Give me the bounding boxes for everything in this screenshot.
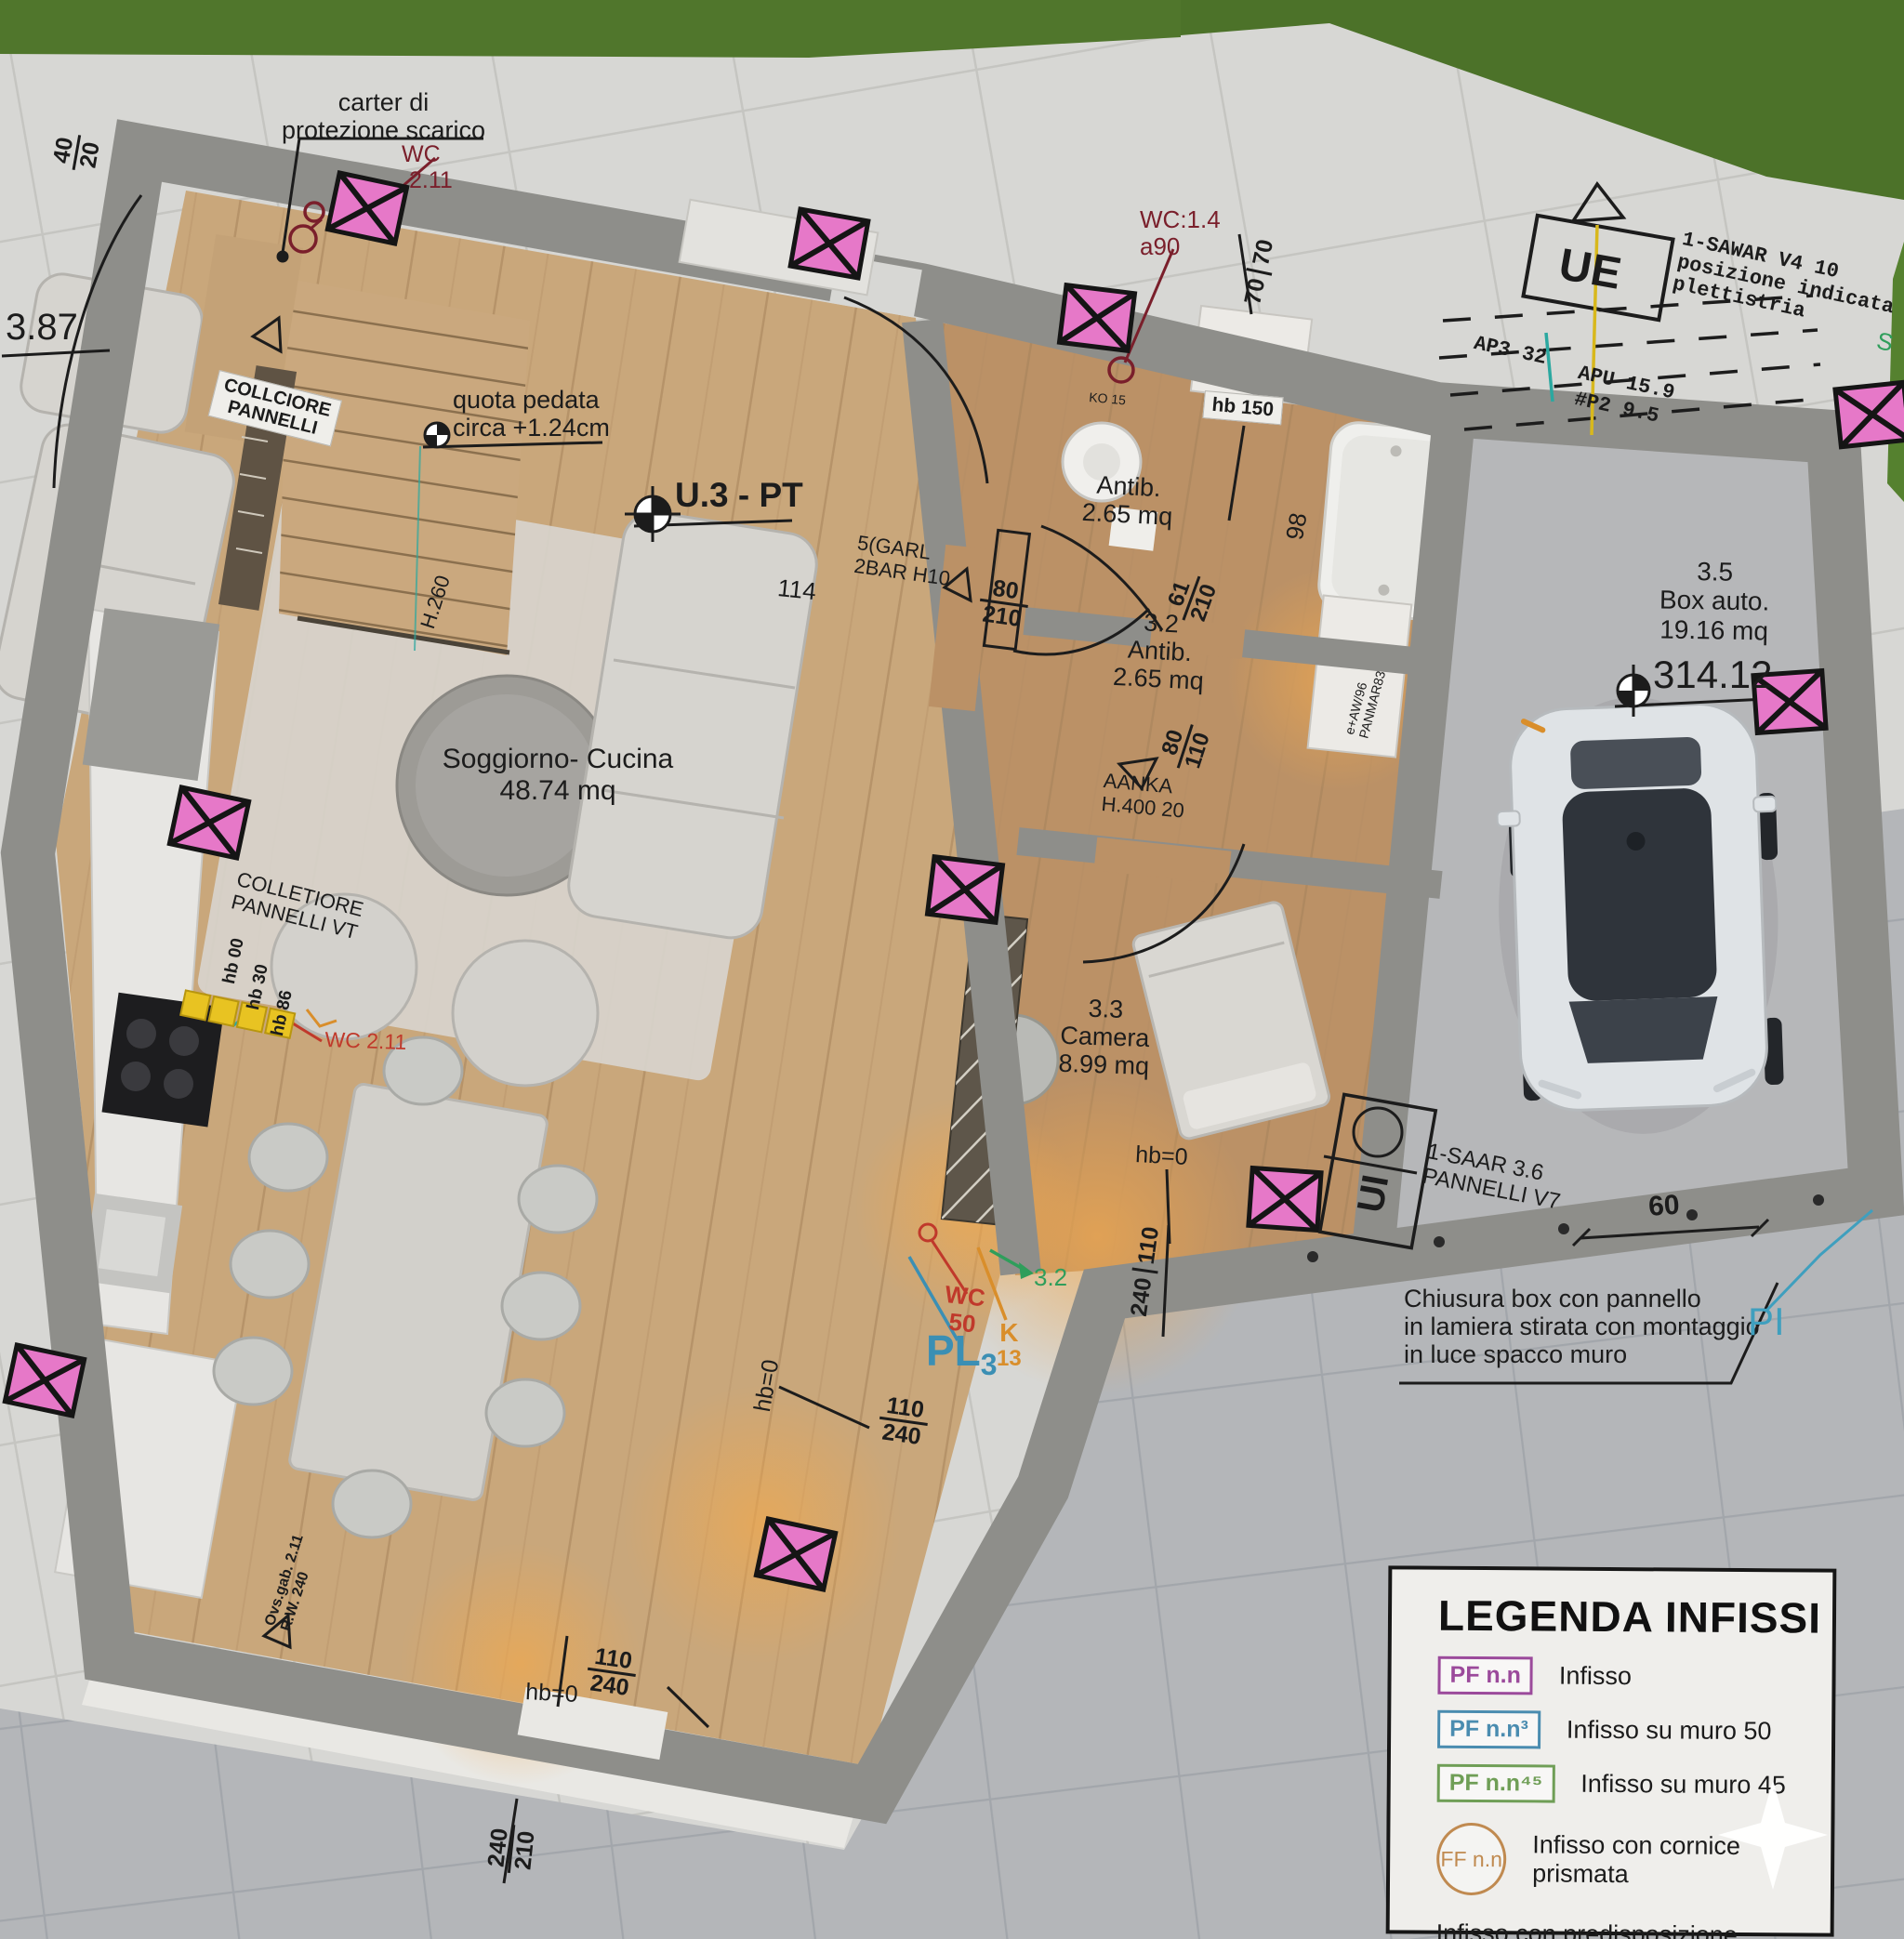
legend-symbol-pf: PF n.n	[1437, 1656, 1533, 1695]
legend-row-muro50: PF n.n³ Infisso su muro 50	[1437, 1710, 1831, 1751]
carter-note: carter diprotezione scarico	[279, 88, 488, 144]
quota-note: quota pedatacirca +1.24cm	[453, 386, 610, 442]
ue-label: UE	[1555, 240, 1625, 300]
pi-label: PI	[1748, 1299, 1785, 1343]
living-label: Soggiorno- Cucina48.74 mq	[423, 744, 693, 806]
dim-240-210: 240210	[483, 1823, 540, 1876]
legend-label: Infisso su muro 45	[1580, 1770, 1786, 1800]
k13-label: K13	[997, 1318, 1022, 1372]
legend-symbol-pf-50: PF n.n³	[1437, 1710, 1540, 1749]
wc-top-label: WC2.11	[402, 141, 453, 193]
floorplan-canvas: carter diprotezione scarico WC2.11 4020 …	[0, 0, 1904, 1939]
dim-110-240-a: 110240	[876, 1392, 931, 1450]
legend-box: LEGENDA INFISSI PF n.n Infisso PF n.n³ I…	[1386, 1565, 1837, 1936]
legend-symbol-ff: FF n.n	[1436, 1823, 1507, 1896]
dim-60: 60	[1647, 1190, 1681, 1223]
camera-label: 3.3Camera8.99 mq	[1038, 993, 1171, 1082]
legend-row-infisso: PF n.n Infisso	[1437, 1656, 1831, 1697]
wc14-label: WC:1.4a90	[1140, 206, 1221, 260]
floor-glow	[623, 1385, 902, 1664]
dim-80-210: 80210	[976, 574, 1031, 632]
ui-label: UI	[1350, 1172, 1397, 1216]
dim-110-240-b: 110240	[584, 1643, 639, 1701]
dim-98: 98	[1281, 511, 1313, 543]
wc-kitchen-label: WC 2.11	[324, 1028, 407, 1055]
legend-title: LEGENDA INFISSI	[1438, 1590, 1832, 1643]
garage-label: 3.5Box auto.19.16 mq	[1634, 556, 1794, 646]
legend-label: Infisso con predisposizione infornata	[1435, 1919, 1830, 1939]
hb0-camera: hb=0	[1135, 1141, 1189, 1170]
legend-symbol-pf-45: PF n.n⁴⁵	[1437, 1764, 1555, 1803]
garage-elevation: 314.12	[1653, 653, 1772, 696]
anka-note: AANKAH.400 20	[1101, 770, 1187, 823]
ko15-label: KO 15	[1089, 390, 1127, 408]
antib2-label: 3.2Antib.2.65 mq	[1097, 606, 1223, 696]
dim-114: 114	[776, 574, 817, 605]
legend-label: Infisso su muro 50	[1567, 1716, 1772, 1747]
hb0-kitchen: hb=0	[525, 1679, 579, 1708]
chiusura-note: Chiusura box con pannelloin lamiera stir…	[1404, 1285, 1760, 1369]
legend-row-predisposizione: Infisso con predisposizione infornata	[1435, 1919, 1830, 1939]
wc50-label: WC50	[941, 1281, 986, 1339]
g32-label: 3.2	[1034, 1264, 1067, 1291]
dim-387: 3.87	[6, 307, 78, 349]
antib1-label: Antib.2.65 mq	[1066, 469, 1190, 532]
legend-label: Infisso	[1559, 1662, 1632, 1692]
car	[1491, 692, 1787, 1139]
plan-title: U.3 - PT	[675, 476, 803, 514]
